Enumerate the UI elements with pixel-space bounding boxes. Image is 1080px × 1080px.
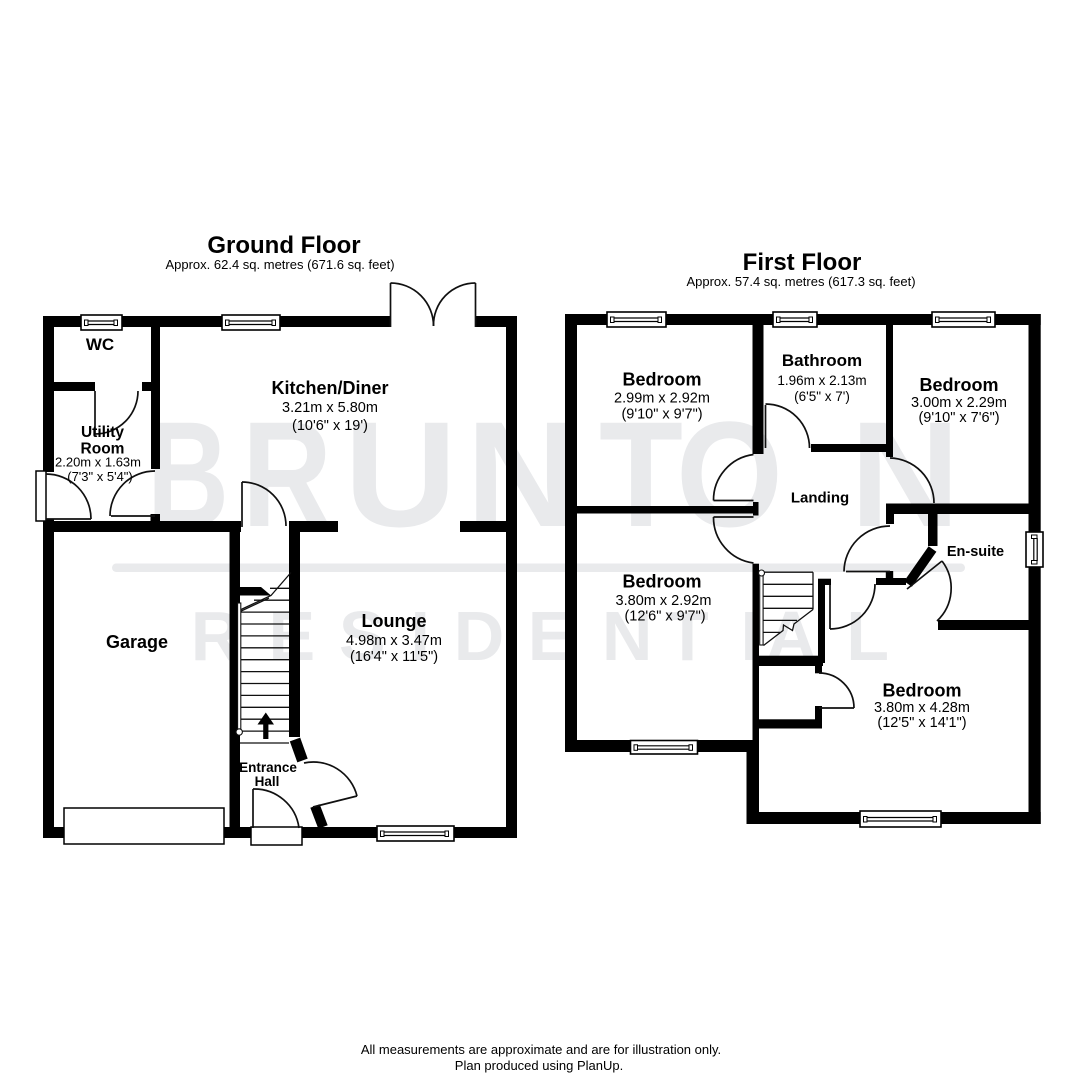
- svg-text:(12'6" x 9'7"): (12'6" x 9'7"): [624, 609, 705, 625]
- svg-text:(9'10" x 9'7"): (9'10" x 9'7"): [621, 407, 702, 423]
- svg-text:Approx. 62.4 sq. metres (671.6: Approx. 62.4 sq. metres (671.6 sq. feet): [165, 257, 394, 272]
- svg-text:Lounge: Lounge: [362, 611, 427, 631]
- svg-text:Ground Floor: Ground Floor: [207, 232, 360, 259]
- svg-text:Approx. 57.4 sq. metres (617.3: Approx. 57.4 sq. metres (617.3 sq. feet): [686, 274, 915, 289]
- svg-text:Bathroom: Bathroom: [782, 351, 862, 370]
- svg-text:(7'3" x 5'4"): (7'3" x 5'4"): [67, 469, 133, 484]
- svg-text:N: N: [466, 390, 577, 558]
- svg-text:2.99m x 2.92m: 2.99m x 2.92m: [614, 391, 710, 407]
- svg-text:2.20m x 1.63m: 2.20m x 1.63m: [55, 455, 141, 470]
- svg-text:First Floor: First Floor: [743, 249, 862, 276]
- svg-text:3.21m x 5.80m: 3.21m x 5.80m: [282, 400, 378, 416]
- svg-text:1.96m x 2.13m: 1.96m x 2.13m: [777, 373, 866, 388]
- svg-text:(6'5" x 7'): (6'5" x 7'): [794, 389, 850, 404]
- svg-text:Entrance: Entrance: [239, 760, 297, 775]
- svg-text:WC: WC: [86, 335, 114, 354]
- svg-text:Bedroom: Bedroom: [919, 375, 998, 395]
- svg-text:Plan produced using PlanUp.: Plan produced using PlanUp.: [455, 1058, 623, 1073]
- svg-text:All measurements are approxima: All measurements are approximate and are…: [361, 1042, 721, 1057]
- svg-text:(9'10" x 7'6"): (9'10" x 7'6"): [918, 410, 999, 426]
- svg-text:Garage: Garage: [106, 632, 168, 652]
- svg-text:Kitchen/Diner: Kitchen/Diner: [271, 378, 388, 398]
- svg-text:Bedroom: Bedroom: [882, 681, 961, 701]
- svg-text:3.80m x 2.92m: 3.80m x 2.92m: [616, 593, 712, 609]
- svg-text:4.98m x 3.47m: 4.98m x 3.47m: [346, 633, 442, 649]
- svg-text:(10'6" x 19'): (10'6" x 19'): [292, 418, 368, 434]
- svg-text:En-suite: En-suite: [947, 544, 1004, 560]
- svg-text:3.80m x 4.28m: 3.80m x 4.28m: [874, 700, 970, 716]
- svg-text:Utility: Utility: [81, 424, 124, 441]
- svg-text:3.00m x 2.29m: 3.00m x 2.29m: [911, 395, 1007, 411]
- svg-text:Bedroom: Bedroom: [622, 370, 701, 390]
- svg-text:(12'5" x 14'1"): (12'5" x 14'1"): [877, 715, 966, 731]
- svg-text:Landing: Landing: [791, 490, 849, 507]
- svg-text:Bedroom: Bedroom: [622, 572, 701, 592]
- svg-text:Hall: Hall: [255, 774, 280, 789]
- svg-text:(16'4" x 11'5"): (16'4" x 11'5"): [350, 649, 438, 665]
